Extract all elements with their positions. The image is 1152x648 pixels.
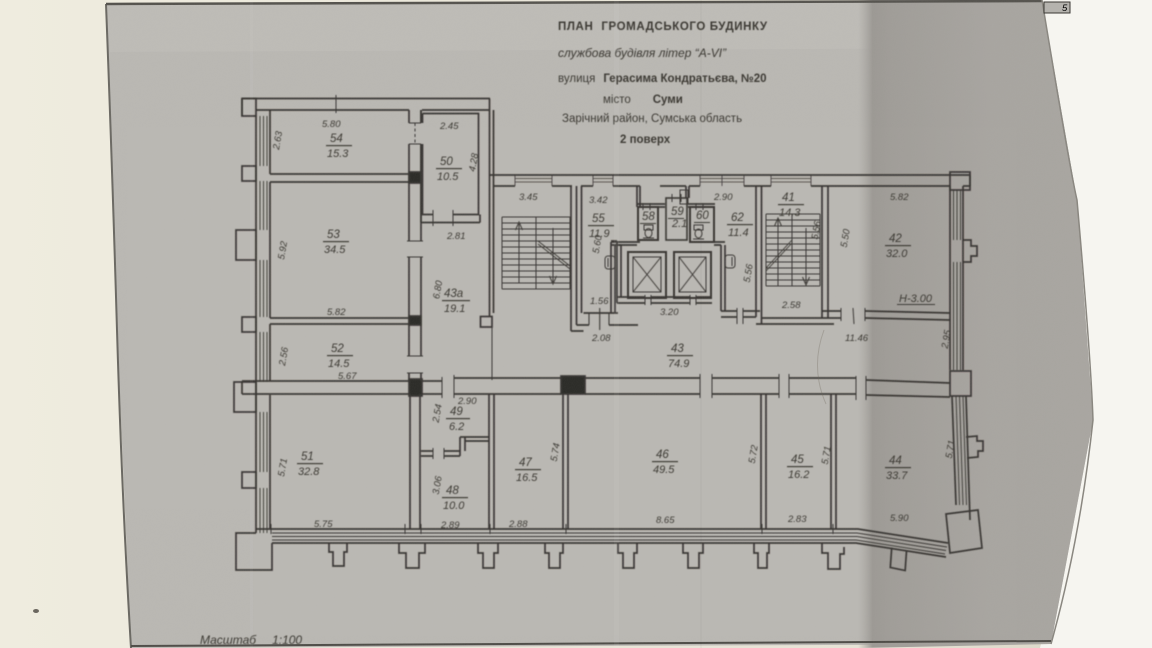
svg-text:16.2: 16.2 <box>788 469 809 481</box>
svg-text:43: 43 <box>671 343 684 355</box>
svg-text:3.20: 3.20 <box>660 307 679 318</box>
svg-text:49.5: 49.5 <box>653 464 675 476</box>
svg-text:5: 5 <box>1062 3 1068 14</box>
svg-text:ПЛАНГРОМАДСЬКОГО БУДИНКУ: ПЛАНГРОМАДСЬКОГО БУДИНКУ <box>558 21 768 33</box>
svg-text:32.0: 32.0 <box>886 248 908 260</box>
svg-text:6.2: 6.2 <box>449 421 464 433</box>
svg-text:3.42: 3.42 <box>589 195 608 206</box>
svg-text:5.75: 5.75 <box>314 519 333 530</box>
svg-text:55: 55 <box>592 213 605 225</box>
svg-text:47: 47 <box>519 457 532 469</box>
svg-text:14.3: 14.3 <box>779 207 801 219</box>
svg-text:33.7: 33.7 <box>886 470 908 482</box>
svg-text:58: 58 <box>642 211 655 223</box>
svg-text:2.58: 2.58 <box>781 300 801 311</box>
svg-text:34.5: 34.5 <box>324 244 346 256</box>
svg-text:5.90: 5.90 <box>890 513 909 524</box>
svg-text:10.0: 10.0 <box>443 500 465 512</box>
svg-text:11.46: 11.46 <box>845 333 869 344</box>
svg-text:74.9: 74.9 <box>668 358 689 370</box>
svg-text:2.83: 2.83 <box>787 514 807 525</box>
svg-text:43а: 43а <box>444 288 463 300</box>
svg-text:2.90: 2.90 <box>713 192 733 203</box>
svg-text:44: 44 <box>889 455 902 467</box>
svg-text:53: 53 <box>327 229 340 241</box>
svg-text:5.82: 5.82 <box>890 192 909 203</box>
svg-text:32.8: 32.8 <box>298 466 320 478</box>
svg-text:11.4: 11.4 <box>728 227 749 239</box>
svg-text:2.81: 2.81 <box>446 231 466 242</box>
svg-text:16.5: 16.5 <box>516 472 538 484</box>
svg-text:50: 50 <box>440 156 453 168</box>
svg-text:2.1: 2.1 <box>671 218 687 230</box>
svg-text:5.67: 5.67 <box>338 371 357 382</box>
svg-text:2.88: 2.88 <box>508 519 528 530</box>
svg-text:41: 41 <box>782 192 795 204</box>
svg-text:2.90: 2.90 <box>457 396 477 407</box>
svg-text:14.5: 14.5 <box>328 358 350 370</box>
svg-text:8.65: 8.65 <box>656 515 675 526</box>
svg-text:51: 51 <box>301 451 314 463</box>
svg-text:2.89: 2.89 <box>440 520 460 531</box>
svg-text:Н-3.00: Н-3.00 <box>899 293 933 305</box>
svg-text:59: 59 <box>671 206 684 218</box>
svg-text:2.08: 2.08 <box>591 333 611 344</box>
svg-text:60: 60 <box>696 210 709 222</box>
svg-text:45: 45 <box>791 454 804 466</box>
svg-text:49: 49 <box>450 406 463 418</box>
svg-text:Зарічний район, Сумська област: Зарічний район, Сумська область <box>562 113 742 125</box>
svg-text:5.80: 5.80 <box>322 119 341 130</box>
svg-text:5.82: 5.82 <box>327 307 346 318</box>
svg-text:1.56: 1.56 <box>590 296 609 307</box>
svg-text:48: 48 <box>446 485 459 497</box>
svg-text:46: 46 <box>656 449 669 461</box>
svg-text:вулицяГерасима Кондратьєва, №2: вулицяГерасима Кондратьєва, №20 <box>558 73 767 85</box>
svg-text:10.5: 10.5 <box>437 171 459 183</box>
svg-text:19.1: 19.1 <box>444 303 465 315</box>
svg-text:54: 54 <box>330 133 343 145</box>
svg-text:42: 42 <box>889 233 902 245</box>
svg-text:2 поверх: 2 поверх <box>620 134 671 146</box>
svg-text:3.45: 3.45 <box>519 192 538 203</box>
svg-text:62: 62 <box>731 212 744 224</box>
svg-text:52: 52 <box>331 343 344 355</box>
svg-text:2.45: 2.45 <box>439 121 459 132</box>
svg-text:15.3: 15.3 <box>327 148 349 160</box>
